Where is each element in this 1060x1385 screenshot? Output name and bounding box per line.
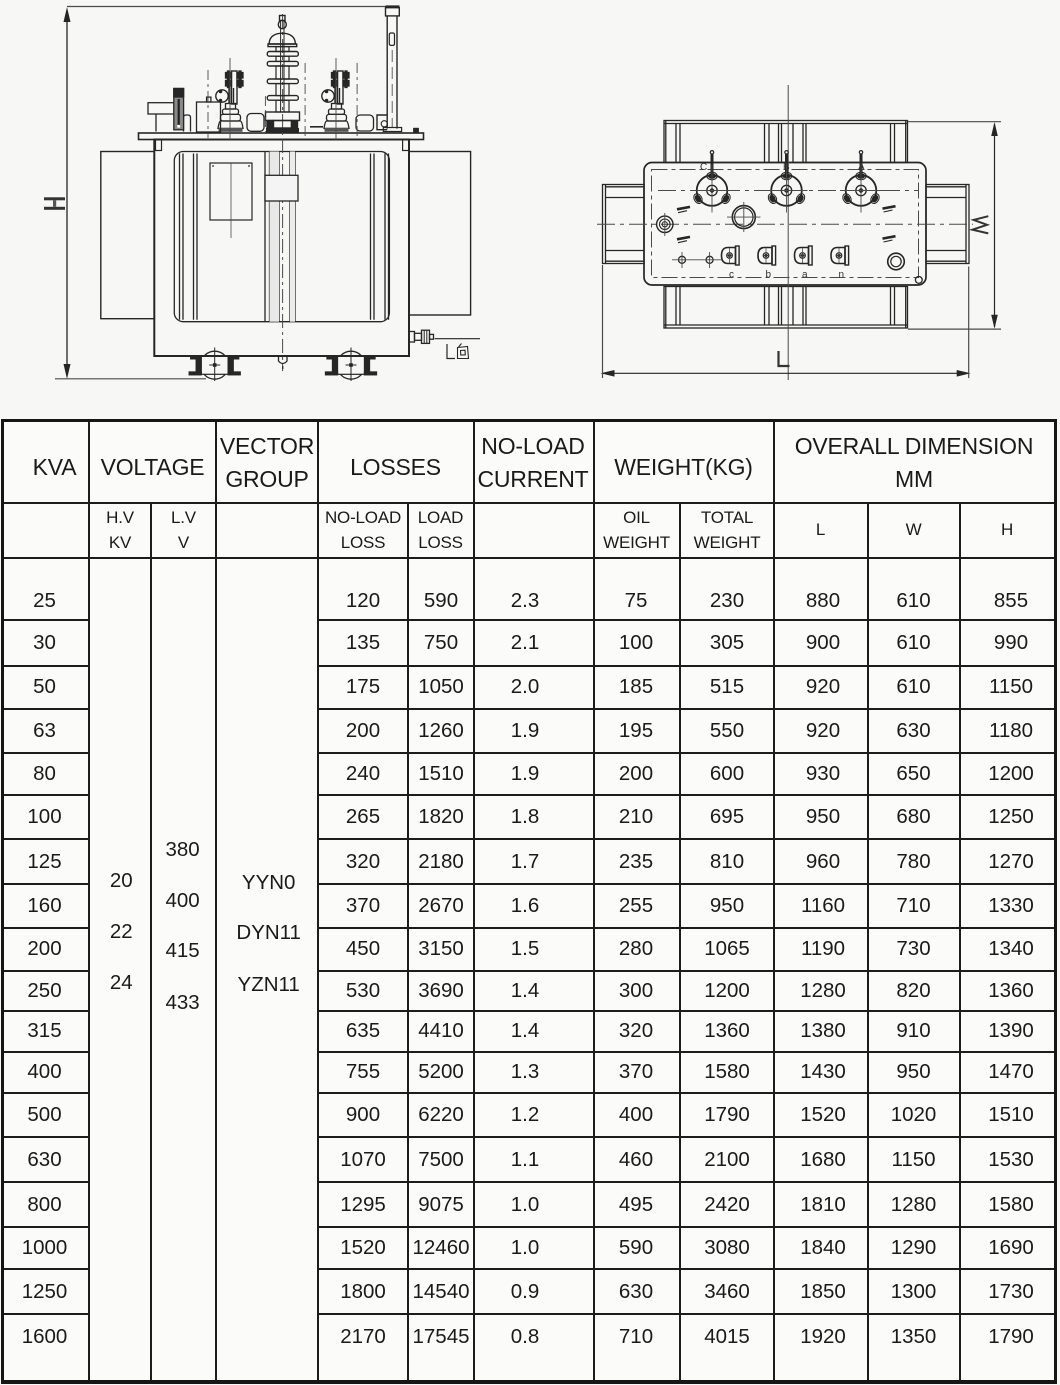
svg-text:B: B	[783, 162, 790, 173]
svg-text:c: c	[729, 270, 734, 281]
svg-text:b: b	[766, 270, 772, 281]
svg-text:n: n	[839, 270, 845, 281]
svg-text:a: a	[802, 270, 808, 281]
svg-text:C: C	[700, 162, 707, 173]
svg-text:A: A	[858, 162, 865, 173]
